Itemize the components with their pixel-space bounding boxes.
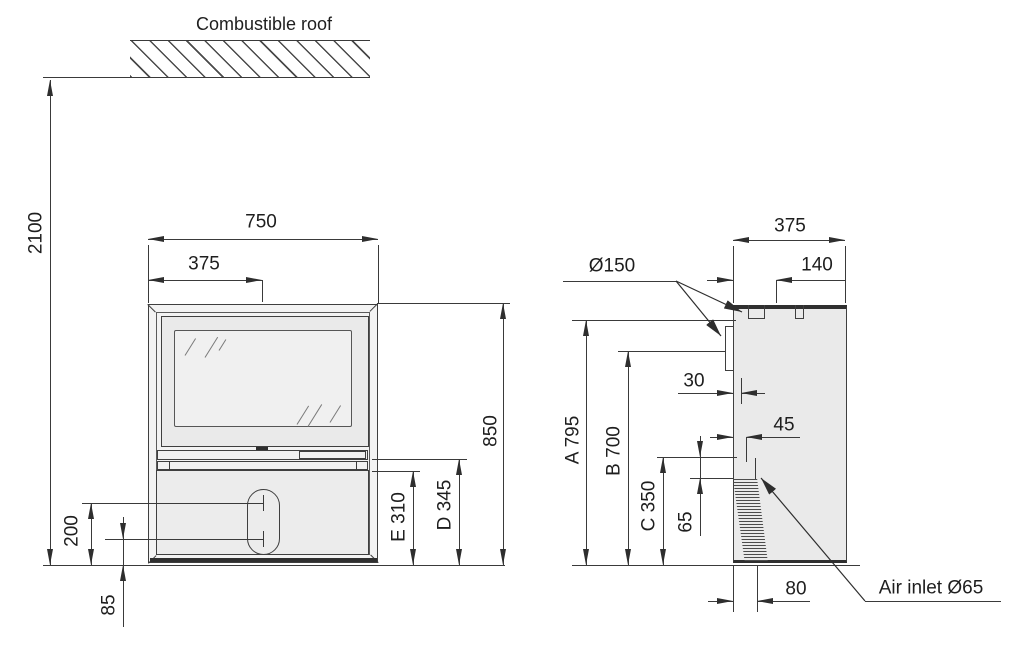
air-inlet-leader xyxy=(761,478,865,601)
flue-leader-rear-outlet xyxy=(676,281,721,336)
leader-lines xyxy=(0,0,1024,648)
flue-leader-top-outlet xyxy=(676,281,742,312)
dimension-drawing: Combustible roof 2100 750 375 xyxy=(0,0,1024,648)
